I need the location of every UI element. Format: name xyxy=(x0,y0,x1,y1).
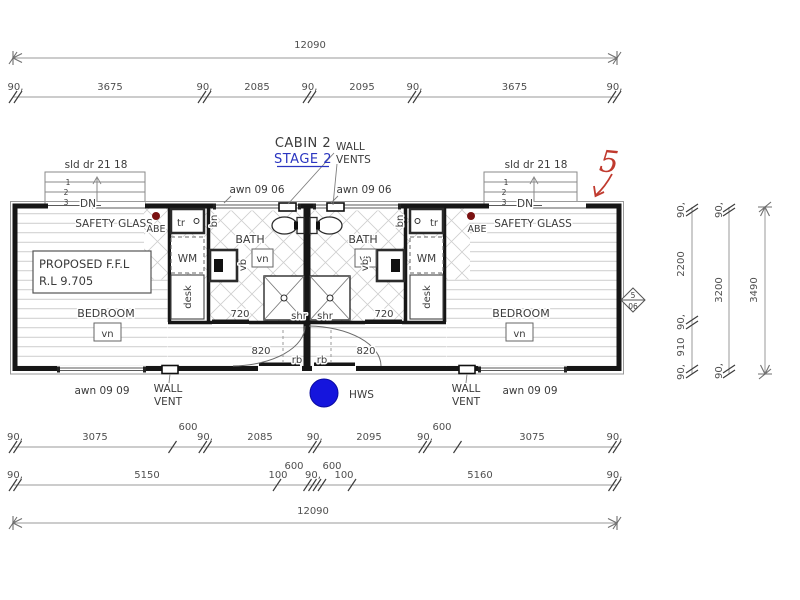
toilet-right-button xyxy=(316,222,320,230)
wall-vent-topleft xyxy=(279,203,296,211)
shr-left-label: shr xyxy=(291,311,308,322)
step-number: 1 xyxy=(66,178,71,187)
wm-right-label: WM xyxy=(417,253,436,265)
vn-bedroom-right: vn xyxy=(513,329,525,340)
shower-left-drain xyxy=(281,295,287,301)
vn-bedroom-left: vn xyxy=(101,329,113,340)
dim-label: 600 xyxy=(322,461,341,472)
bottom-dimensions: 90, 3075 600 90, 2085 90, 2095 90, 600 3… xyxy=(7,422,622,530)
wall-vent-left-label-1: WALL xyxy=(154,383,183,395)
awning-bottom-left-label: awn 09 09 xyxy=(74,385,129,397)
dim-label: 2200 xyxy=(676,251,687,276)
dim-label: 90, xyxy=(676,314,687,330)
dim-label: 5160 xyxy=(467,470,492,481)
wall-vent-bottomright xyxy=(459,366,475,374)
dim-label: 90, xyxy=(607,432,623,443)
bath-right-door-leaf xyxy=(365,320,402,325)
awning-bottom-right-label: awn 09 09 xyxy=(502,385,557,397)
dim-label: 90, xyxy=(7,470,23,481)
step-number: 2 xyxy=(502,188,507,197)
bath-door-left-dim: 720 xyxy=(230,309,249,320)
dim-label: 90, xyxy=(197,432,213,443)
awning-top-right-label: awn 09 06 xyxy=(336,184,391,196)
vanity-basin-left-bowl xyxy=(214,259,223,272)
hws-label: HWS xyxy=(349,389,374,401)
ffl-note-line2: R.L 9.705 xyxy=(39,274,93,288)
vanity-basin-right-bowl xyxy=(391,259,400,272)
safety-glass-right-label: SAFETY GLASS xyxy=(494,218,572,230)
top-dimensions: 12090 90, 3675 90, 2085 90, 2095 90, 367… xyxy=(8,40,623,103)
dim-label: 5150 xyxy=(134,470,159,481)
vb-left-label: vb xyxy=(238,259,249,271)
desk-left-label: desk xyxy=(183,285,194,309)
dim-label: 90, xyxy=(407,82,423,93)
wm-left-label: WM xyxy=(178,253,197,265)
markup-number: 5 xyxy=(598,144,621,181)
dim-label: 600 xyxy=(178,422,197,433)
bath-left-label: BATH xyxy=(235,233,264,246)
abe-right-label: ABE xyxy=(467,224,486,235)
rb-left-label: rb xyxy=(292,355,302,366)
stage-title: STAGE 2 xyxy=(274,152,332,167)
entry-door-left-opening xyxy=(258,365,302,373)
window-jamb xyxy=(478,367,481,373)
bedroom-left-label: BEDROOM xyxy=(77,307,134,320)
abe-dot-right xyxy=(467,212,475,220)
entry-door-left-dim: 820 xyxy=(251,346,270,357)
trough-right-tap xyxy=(415,219,420,224)
hall-right-floor xyxy=(309,325,446,366)
vb-right-label: vb xyxy=(360,259,371,271)
dim-label: 2095 xyxy=(349,82,374,93)
dim-label: 90, xyxy=(607,470,623,481)
step-number: 1 xyxy=(504,178,509,187)
toilet-left-button xyxy=(294,222,298,230)
dim-label: 90, xyxy=(307,432,323,443)
tr-right-label: tr xyxy=(430,218,439,229)
dim-label: 3675 xyxy=(502,82,527,93)
dim-label: 3200 xyxy=(714,277,725,302)
bath-door-right-dim: 720 xyxy=(374,309,393,320)
toilet-right-pan xyxy=(317,217,342,234)
floor-plan-sheet: 12090 90, 3675 90, 2085 90, 2095 90, 367… xyxy=(0,0,800,600)
awning-window-bottomleft-opening xyxy=(57,366,146,374)
bedroom-right-label: BEDROOM xyxy=(492,307,549,320)
wall-vent-right-label-2: VENT xyxy=(452,396,481,408)
sliding-door-right-label: sld dr 21 18 xyxy=(505,159,568,171)
dim-label: 90, xyxy=(714,363,725,379)
bottom-overall-dim-label: 12090 xyxy=(297,506,329,517)
hws-symbol xyxy=(310,379,338,407)
step-number: 2 xyxy=(64,188,69,197)
window-jamb xyxy=(57,367,60,373)
step-number: 3 xyxy=(502,198,507,207)
wall-vent-right-label-1: WALL xyxy=(452,383,481,395)
dim-label: 3075 xyxy=(519,432,544,443)
section-marker: 5 06 xyxy=(621,288,645,312)
dim-label: 90, xyxy=(302,82,318,93)
hall-left-floor xyxy=(168,325,305,366)
shr-right-label: shr xyxy=(317,311,334,322)
rb-right-label: rb xyxy=(317,355,327,366)
window-jamb xyxy=(564,367,567,373)
dim-label: 90, xyxy=(676,202,687,218)
window-jamb xyxy=(213,204,216,210)
abe-left-label: ABE xyxy=(146,224,165,235)
toilet-right-cistern xyxy=(310,218,317,234)
dim-label: 3490 xyxy=(749,277,760,302)
dim-label: 2095 xyxy=(356,432,381,443)
dim-label: 90, xyxy=(714,202,725,218)
shower-right-drain xyxy=(327,295,333,301)
dim-label: 90, xyxy=(7,432,23,443)
dim-label: 2085 xyxy=(247,432,272,443)
safety-glass-left-label: SAFETY GLASS xyxy=(75,218,153,230)
toilet-left-pan xyxy=(272,217,297,234)
wall-vent-left-label-2: VENT xyxy=(154,396,183,408)
hot-water-system: HWS xyxy=(310,379,374,407)
dim-label: 100 xyxy=(268,470,287,481)
step-number: 3 xyxy=(64,198,69,207)
sliding-door-left-label: sld dr 21 18 xyxy=(65,159,128,171)
dim-label: 90, xyxy=(417,432,433,443)
cabin-title: CABIN 2 xyxy=(275,136,331,151)
awning-window-bottomright-opening xyxy=(478,366,567,374)
desk-right-label: desk xyxy=(422,285,433,309)
tr-left-label: tr xyxy=(177,218,186,229)
down-label-left: DN xyxy=(80,198,96,210)
entry-door-right-dim: 820 xyxy=(356,346,375,357)
dim-label: 910 xyxy=(676,337,687,356)
red-markup: 5 xyxy=(594,144,620,196)
dim-label: 3075 xyxy=(82,432,107,443)
wall-vents-label-2: VENTS xyxy=(336,154,371,166)
dim-label: 90, xyxy=(305,470,321,481)
bn-left-label: bn xyxy=(209,215,220,228)
bath-left-door-leaf xyxy=(212,320,249,325)
dim-label: 90, xyxy=(8,82,24,93)
wall-vent-topright xyxy=(327,203,344,211)
section-sheet: 06 xyxy=(628,302,638,311)
window-jamb xyxy=(298,204,301,210)
trough-left-tap xyxy=(194,219,199,224)
dim-label: 90, xyxy=(676,364,687,380)
section-number: 5 xyxy=(631,291,636,300)
vn-bath-left: vn xyxy=(256,254,268,265)
right-dimensions: 90, 2200 90, 910 90, 90, 3200 90, 3490 xyxy=(676,202,772,380)
wall-vents-label-1: WALL xyxy=(336,141,365,153)
wall-vent-bottomleft xyxy=(162,366,178,374)
abe-dot-left xyxy=(152,212,160,220)
bath-right-label: BATH xyxy=(348,233,377,246)
window-jamb xyxy=(398,204,401,210)
drawing-canvas: 12090 90, 3675 90, 2085 90, 2095 90, 367… xyxy=(0,0,800,600)
dim-label: 2085 xyxy=(244,82,269,93)
window-jamb xyxy=(313,204,316,210)
toilet-left-cistern xyxy=(297,218,304,234)
dim-label: 90, xyxy=(197,82,213,93)
dim-label: 600 xyxy=(432,422,451,433)
down-label-right: DN xyxy=(517,198,533,210)
awning-top-left-label: awn 09 06 xyxy=(229,184,284,196)
top-overall-dim-label: 12090 xyxy=(294,40,326,51)
ffl-note-line1: PROPOSED F.F.L xyxy=(39,257,130,271)
sliding-door-left-opening xyxy=(48,202,145,211)
dim-label: 90, xyxy=(607,82,623,93)
bn-right-label: bn xyxy=(395,215,406,228)
entry-door-right-opening xyxy=(312,365,356,373)
entry-steps xyxy=(45,172,577,204)
window-jamb xyxy=(143,367,146,373)
dim-label: 3675 xyxy=(97,82,122,93)
